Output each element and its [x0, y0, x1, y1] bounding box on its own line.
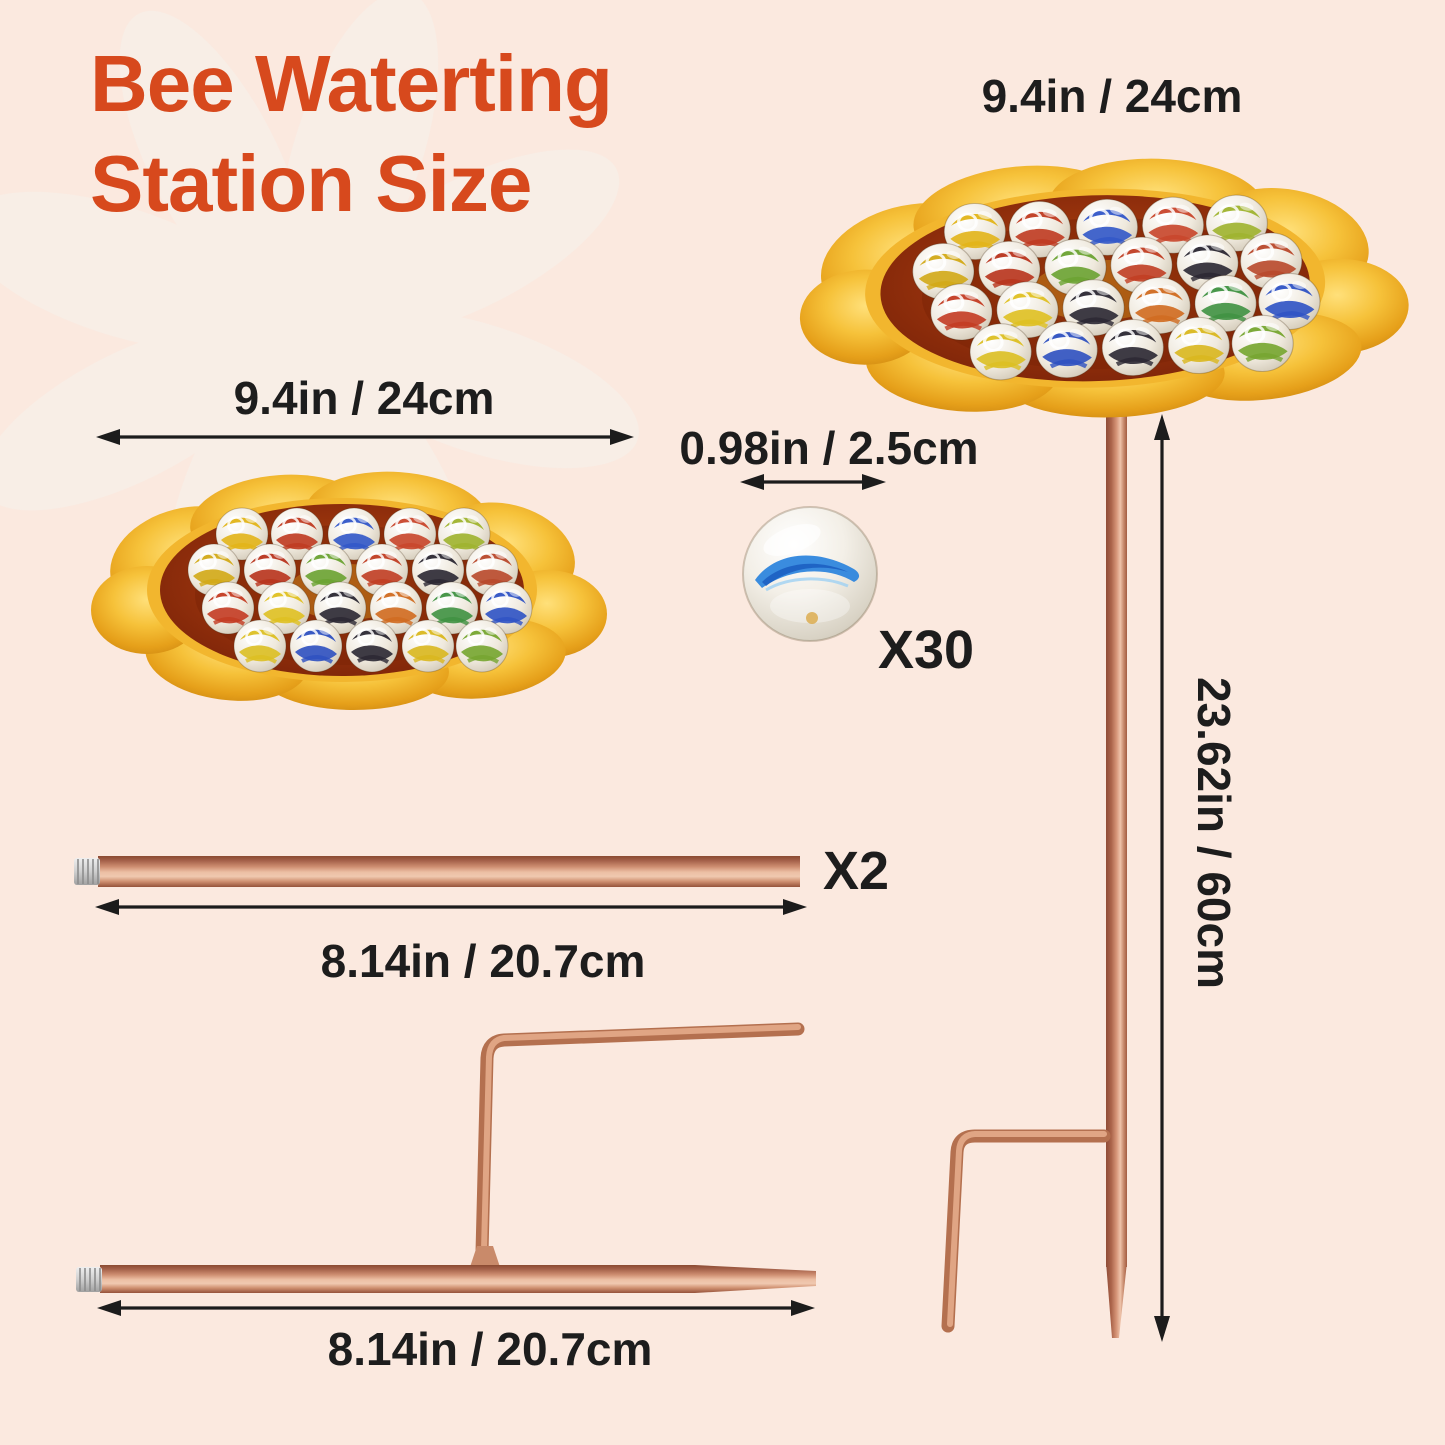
stake-dimension-arrow [1154, 414, 1170, 1342]
ground-rod-dimension-arrow [97, 1300, 815, 1316]
extension-rod-dimension-label: 8.14in / 20.7cm [321, 934, 646, 988]
left-dish-image [91, 466, 607, 710]
page-title-line1: Bee Waterting [90, 34, 612, 134]
marble-count-label: X30 [878, 619, 974, 681]
extension-rod-dimension-arrow [95, 899, 807, 915]
top-dish-dimension-label: 9.4in / 24cm [982, 69, 1243, 123]
left-dish-dimension-label: 9.4in / 24cm [234, 371, 495, 425]
ground-rod-dimension-label: 8.14in / 20.7cm [328, 1322, 653, 1376]
stake-pole-image [1106, 410, 1127, 1338]
stake-support-bar-image [948, 1134, 1104, 1326]
rod-count-label: X2 [823, 840, 889, 902]
stake-dimension-label: 23.62in / 60cm [1187, 677, 1241, 989]
marble-dimension-arrow [740, 474, 886, 490]
marble-image [743, 507, 877, 641]
infographic-canvas: Bee Waterting Station Size 9.4in / 24cm … [0, 0, 1445, 1445]
page-title: Bee Waterting Station Size [90, 34, 612, 234]
marble-dimension-label: 0.98in / 2.5cm [679, 421, 978, 475]
extension-rod-image [74, 856, 800, 887]
ground-rod-image [76, 1027, 816, 1293]
top-dish-image [794, 144, 1413, 427]
page-title-line2: Station Size [90, 134, 612, 234]
